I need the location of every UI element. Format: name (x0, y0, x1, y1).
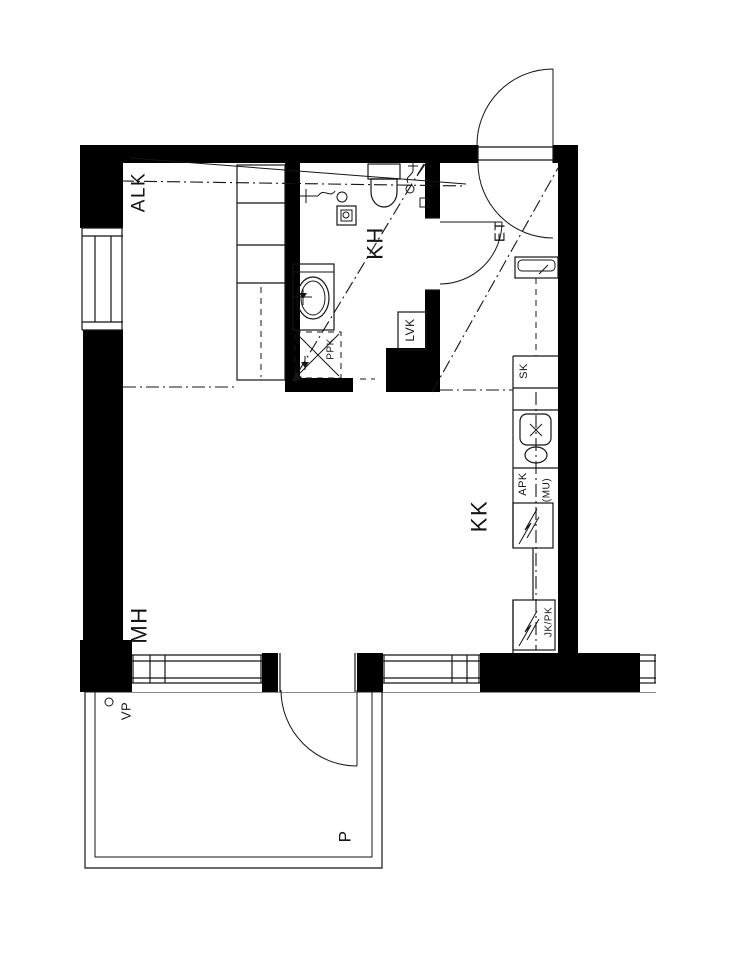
label-bathroom: KH (363, 226, 388, 260)
label-bedroom: MH (127, 606, 152, 643)
floor-drain (337, 206, 356, 225)
label-kitchenette: KK (467, 500, 492, 532)
floorplan-svg: ALK KH ET KK MH P VP LVK SK APK (MU) JK/… (0, 0, 732, 956)
label-cleaning-closet: SK (518, 363, 530, 379)
section-line-entry (432, 168, 558, 392)
labels: ALK KH ET KK MH P VP LVK SK APK (MU) JK/… (119, 172, 555, 843)
top-wall (85, 145, 478, 163)
label-balcony: P (336, 830, 355, 843)
window-bottom-c (640, 653, 656, 692)
balcony-inner-rail (95, 692, 372, 857)
shower-symbol (300, 189, 347, 203)
left-wall-top-corner (80, 145, 123, 230)
right-wall (558, 145, 578, 660)
left-wall-lower (83, 328, 123, 654)
bottom-wall-seg1 (262, 653, 278, 692)
kitchen-fixtures (513, 257, 558, 653)
balcony-door (278, 653, 357, 766)
balcony-door-swing (281, 690, 357, 766)
entrance-door-swing-in (478, 163, 553, 238)
section-tick (417, 163, 426, 176)
label-alcove: ALK (129, 172, 150, 212)
bottom-wall-seg2 (357, 653, 383, 692)
floorplan-page: ALK KH ET KK MH P VP LVK SK APK (MU) JK/… (0, 0, 732, 956)
window-left (80, 228, 123, 330)
window-bottom-b (383, 653, 480, 692)
label-balcony-mark: VP (119, 702, 134, 720)
label-dishwasher-alt: (MU) (542, 478, 553, 502)
entrance-door-swing-out (477, 69, 553, 145)
bathroom-fixtures (293, 163, 429, 378)
entrance-door (477, 69, 553, 238)
balcony-drain-mark (105, 698, 113, 706)
bottom-wall-seg3 (480, 653, 640, 692)
label-dishwasher: APK (517, 472, 529, 496)
bathroom-right-wall-upper (425, 163, 440, 218)
label-water-heater: LVK (403, 318, 417, 341)
label-washing-machine: PPK (326, 338, 337, 360)
stove (513, 503, 553, 548)
toilet (368, 164, 400, 207)
window-bottom-a (132, 653, 262, 692)
balcony-corner-block (80, 640, 132, 692)
alcove-closet (237, 165, 285, 380)
label-entry: ET (492, 220, 509, 242)
bathroom-corner-mass (386, 348, 440, 392)
bathroom-door (425, 218, 502, 290)
label-fridge-freezer: JK/PK (544, 607, 555, 637)
entry-shelf-unit (515, 257, 558, 278)
